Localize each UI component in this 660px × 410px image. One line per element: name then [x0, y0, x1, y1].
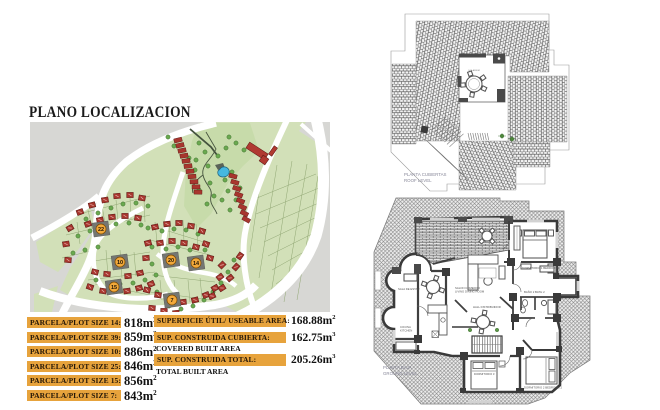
svg-text:PLANTA CUBIERTAS: PLANTA CUBIERTAS: [404, 172, 447, 177]
svg-text:HALL DISTRIBUIDOR: HALL DISTRIBUIDOR: [473, 305, 501, 309]
svg-text:14: 14: [193, 261, 200, 267]
svg-text:10: 10: [117, 260, 123, 266]
svg-text:PLANTA BAJA: PLANTA BAJA: [383, 365, 412, 370]
svg-text:KITCHEN: KITCHEN: [400, 329, 412, 333]
svg-text:SOLARIUM: SOLARIUM: [468, 69, 480, 72]
svg-text:BAÑO 2 BATH 2: BAÑO 2 BATH 2: [524, 289, 545, 294]
svg-text:DORMITORIO 1 BEDROOM 1: DORMITORIO 1 BEDROOM 1: [522, 266, 560, 270]
svg-text:20: 20: [168, 258, 174, 264]
svg-text:22: 22: [98, 227, 104, 233]
svg-text:GROUND LEVEL: GROUND LEVEL: [383, 371, 418, 376]
svg-text:LIVING DINING ROOM: LIVING DINING ROOM: [455, 290, 485, 294]
svg-text:DORMITORIO 2 BEDROOM 2: DORMITORIO 2 BEDROOM 2: [524, 386, 562, 390]
svg-text:ROOF LEVEL: ROOF LEVEL: [404, 178, 432, 183]
svg-text:DORMITORIO 3: DORMITORIO 3: [474, 372, 495, 376]
svg-text:SALA DE ESTAR: SALA DE ESTAR: [398, 287, 420, 291]
svg-text:7: 7: [170, 298, 173, 304]
svg-text:15: 15: [111, 285, 117, 291]
